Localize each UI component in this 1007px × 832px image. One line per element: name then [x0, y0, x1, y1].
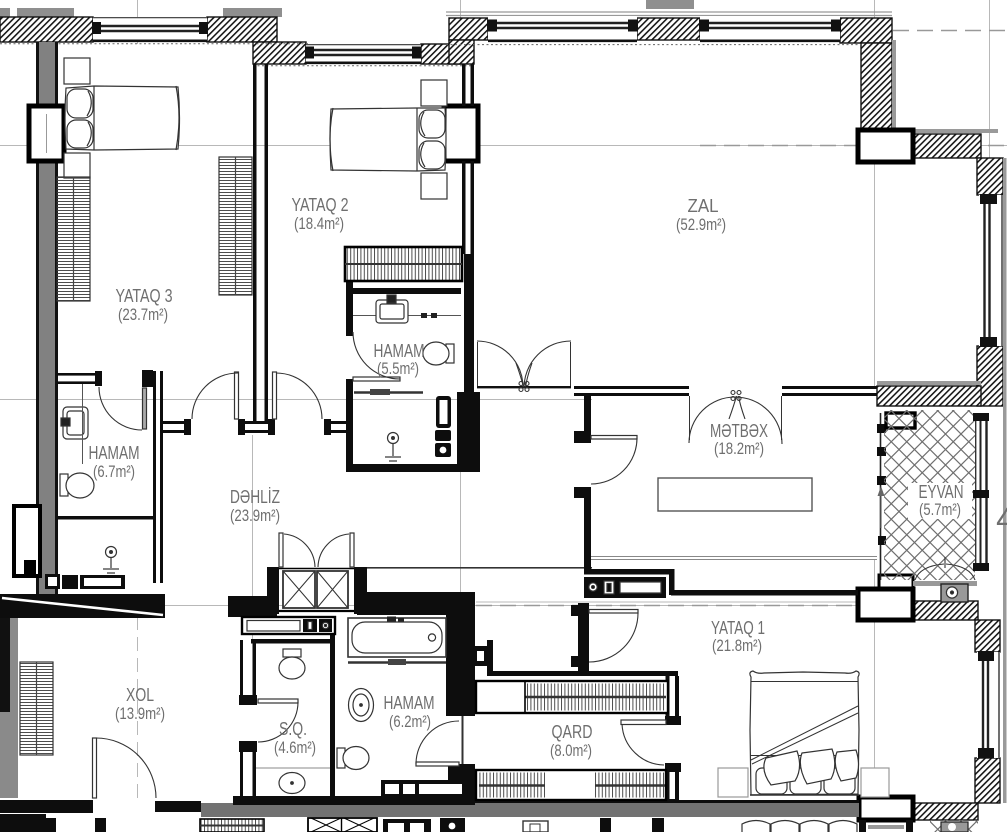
svg-text:(6.2m²): (6.2m²): [389, 712, 431, 731]
svg-text:(18.2m²): (18.2m²): [714, 439, 764, 458]
svg-text:S.Q.: S.Q.: [279, 719, 307, 739]
svg-text:(23.7m²): (23.7m²): [118, 305, 168, 324]
svg-text:4: 4: [996, 501, 1007, 537]
svg-text:(21.8m²): (21.8m²): [712, 636, 762, 655]
svg-text:(4.6m²): (4.6m²): [274, 738, 316, 757]
svg-text:(8.0m²): (8.0m²): [550, 741, 592, 760]
svg-text:YATAQ 2: YATAQ 2: [292, 195, 349, 215]
svg-text:(13.9m²): (13.9m²): [115, 704, 165, 723]
svg-text:(5.7m²): (5.7m²): [919, 500, 961, 519]
svg-text:(52.9m²): (52.9m²): [676, 215, 726, 234]
svg-text:HAMAM: HAMAM: [89, 443, 140, 463]
svg-text:MƏTBƏX: MƏTBƏX: [710, 421, 768, 441]
svg-text:DƏHLİZ: DƏHLİZ: [230, 487, 280, 507]
svg-text:HAMAM: HAMAM: [374, 341, 425, 361]
svg-text:QARD: QARD: [552, 722, 593, 742]
svg-text:(5.5m²): (5.5m²): [377, 359, 419, 378]
svg-text:(18.4m²): (18.4m²): [294, 214, 344, 233]
svg-text:ZAL: ZAL: [688, 196, 719, 216]
svg-text:HAMAM: HAMAM: [384, 693, 435, 713]
svg-text:(23.9m²): (23.9m²): [230, 506, 280, 525]
svg-text:YATAQ 1: YATAQ 1: [711, 618, 765, 638]
svg-text:EYVAN: EYVAN: [919, 482, 964, 502]
svg-text:(6.7m²): (6.7m²): [93, 462, 135, 481]
svg-text:YATAQ 3: YATAQ 3: [116, 286, 173, 306]
svg-text:XOL: XOL: [126, 685, 154, 705]
